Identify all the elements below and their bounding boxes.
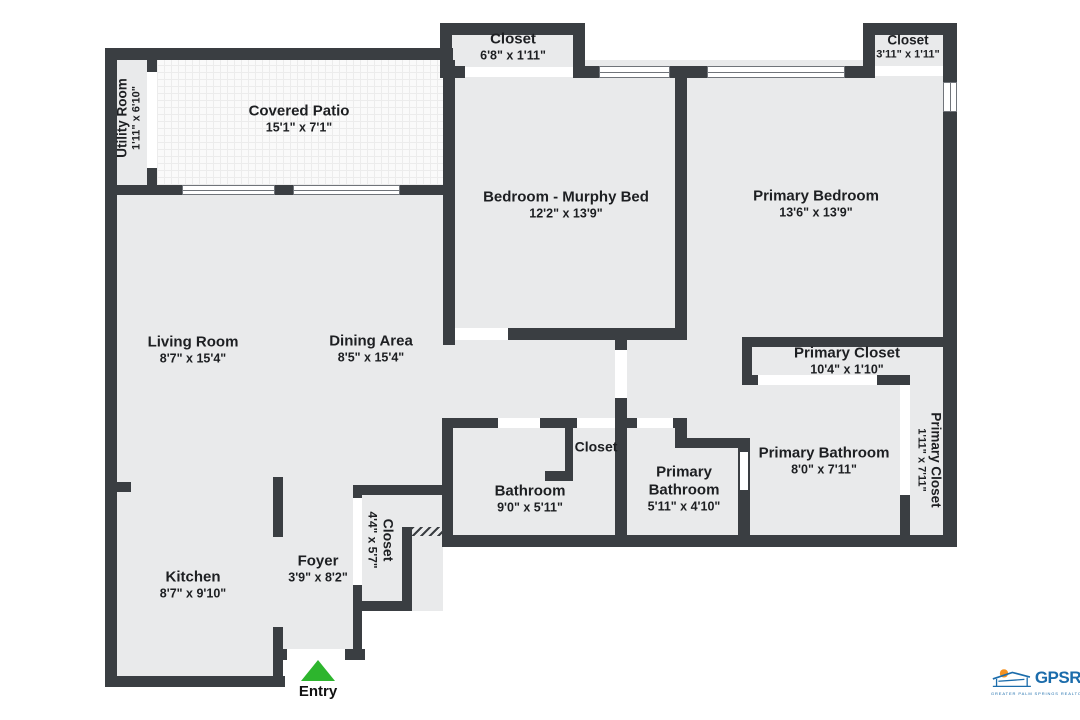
- room-name: Closet: [575, 439, 618, 456]
- door-opening: [149, 72, 157, 168]
- wall: [742, 375, 758, 385]
- wall: [105, 676, 285, 687]
- floor-plan: Utility Room 1'11" x 6'10" Covered Patio…: [0, 0, 1080, 720]
- room-dims: 15'1" x 7'1": [249, 121, 350, 136]
- room-dims: 12'2" x 13'9": [483, 207, 649, 222]
- logo-brand-text: GPSR: [1035, 668, 1080, 688]
- room-label-primary-bathroom-large: Primary Bathroom 8'0" x 7'11": [759, 445, 890, 478]
- door-opening: [455, 328, 508, 340]
- wall: [442, 418, 453, 545]
- brokerage-logo: GPSR GREATER PALM SPRINGS REALTORS: [991, 666, 1080, 696]
- floor-area: [117, 611, 283, 677]
- room-label-foyer-closet: Closet 4'4" x 5'7": [365, 511, 396, 568]
- wall: [105, 482, 131, 492]
- logo-tagline: GREATER PALM SPRINGS REALTORS: [991, 691, 1080, 696]
- room-label-bedroom-murphy-bed: Bedroom - Murphy Bed 12'2" x 13'9": [483, 189, 649, 222]
- wall: [687, 66, 707, 78]
- window: [707, 66, 845, 78]
- room-name: Bathroom: [495, 483, 566, 501]
- door-opening: [353, 498, 362, 585]
- floor-area: [283, 611, 353, 649]
- room-label-foyer: Foyer 3'9" x 8'2": [288, 553, 348, 586]
- wall: [615, 418, 627, 545]
- room-label-living-room: Living Room 8'7" x 15'4": [148, 334, 239, 367]
- door-opening: [875, 66, 943, 76]
- wall: [275, 185, 293, 195]
- wall: [573, 66, 599, 78]
- room-name: Dining Area: [329, 333, 413, 351]
- room-dims: 5'11" x 4'10": [628, 500, 740, 515]
- room-label-primary-closet-upper: Primary Closet 10'4" x 1'10": [794, 345, 900, 378]
- room-name: Closet: [480, 31, 546, 49]
- room-dims: 6'8" x 1'11": [480, 49, 546, 64]
- wall: [105, 185, 149, 195]
- room-name: Primary Bedroom: [753, 188, 879, 206]
- room-label-kitchen: Kitchen 8'7" x 9'10": [160, 569, 226, 602]
- door-opening: [637, 418, 673, 428]
- window: [182, 185, 275, 195]
- room-dims: 8'7" x 15'4": [148, 352, 239, 367]
- wall: [273, 477, 283, 537]
- room-dims: 4'4" x 5'7": [365, 511, 379, 568]
- wall: [353, 601, 412, 611]
- logo-row: GPSR: [991, 666, 1080, 690]
- room-name: Covered Patio: [249, 103, 350, 121]
- room-dims: 8'0" x 7'11": [759, 463, 890, 478]
- room-label-primary-bathroom-small: Primary Bathroom 5'11" x 4'10": [628, 464, 740, 515]
- wall: [675, 66, 687, 338]
- room-dims: 10'4" x 1'10": [794, 363, 900, 378]
- room-name: Bedroom - Murphy Bed: [483, 189, 649, 207]
- room-label-bathroom: Bathroom 9'0" x 5'11": [495, 483, 566, 516]
- wall: [105, 48, 453, 60]
- window: [599, 66, 670, 78]
- room-label-primary-closet-side: Primary Closet 1'11" x 7'11": [914, 412, 943, 507]
- door-opening: [615, 350, 627, 398]
- door-opening: [900, 385, 910, 495]
- hatched-chase: [412, 527, 443, 536]
- room-dims: 8'7" x 9'10": [160, 587, 226, 602]
- wall: [545, 471, 573, 481]
- door-opening: [498, 418, 540, 428]
- wall: [147, 185, 182, 195]
- room-name: Primary Closet: [794, 345, 900, 363]
- entry-arrow-icon: [301, 660, 335, 681]
- room-name: Primary Bathroom: [628, 464, 740, 500]
- entry-door-opening: [287, 649, 345, 660]
- room-name: Closet: [876, 32, 939, 48]
- window: [293, 185, 400, 195]
- room-name: Closet: [380, 511, 397, 568]
- room-dims: 8'5" x 15'4": [329, 351, 413, 366]
- room-dims: 9'0" x 5'11": [495, 501, 566, 516]
- room-name: Utility Room: [114, 78, 130, 158]
- wall: [147, 60, 157, 72]
- room-dims: 13'6" x 13'9": [753, 206, 879, 221]
- room-name: Living Room: [148, 334, 239, 352]
- house-sun-icon: [991, 666, 1032, 690]
- room-label-closet-top-right: Closet 3'11" x 1'11": [876, 32, 939, 61]
- wall: [845, 66, 875, 78]
- room-name: Kitchen: [160, 569, 226, 587]
- wall: [353, 485, 445, 495]
- room-dims: 3'11" x 1'11": [876, 49, 939, 62]
- window: [943, 82, 957, 112]
- room-dims: 1'11" x 6'10": [131, 78, 144, 158]
- room-dims: 3'9" x 8'2": [288, 571, 348, 586]
- floor-area: [443, 345, 455, 420]
- room-name: Primary Closet: [928, 412, 944, 507]
- room-label-covered-patio: Covered Patio 15'1" x 7'1": [249, 103, 350, 136]
- entry-label: Entry: [299, 683, 337, 700]
- room-name: Foyer: [288, 553, 348, 571]
- room-label-closet-top-middle: Closet 6'8" x 1'11": [480, 31, 546, 64]
- room-label-dining-area: Dining Area 8'5" x 15'4": [329, 333, 413, 366]
- room-dims: 1'11" x 7'11": [914, 412, 927, 507]
- wall: [402, 527, 412, 537]
- room-name: Primary Bathroom: [759, 445, 890, 463]
- wall: [402, 535, 412, 611]
- room-label-utility-room: Utility Room 1'11" x 6'10": [114, 78, 143, 158]
- door-opening: [740, 452, 748, 490]
- room-label-primary-bedroom: Primary Bedroom 13'6" x 13'9": [753, 188, 879, 221]
- door-opening: [577, 418, 615, 428]
- door-opening: [465, 67, 573, 77]
- room-label-hall-closet: Closet: [575, 439, 618, 456]
- wall: [443, 60, 455, 345]
- wall: [442, 535, 957, 547]
